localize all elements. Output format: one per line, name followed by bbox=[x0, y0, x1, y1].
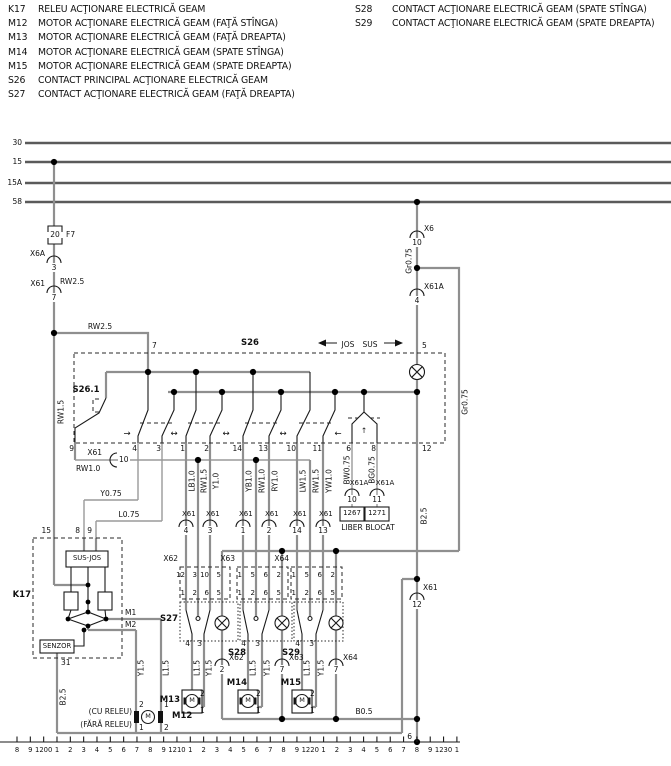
wire-code-label: RW1.5 bbox=[57, 400, 66, 424]
component-label: M13 bbox=[160, 696, 180, 705]
ruler-number: 2 bbox=[201, 746, 205, 755]
direction-label: SUS bbox=[362, 340, 377, 349]
ruler-ticks bbox=[17, 737, 457, 743]
pin-label: 3 bbox=[156, 444, 161, 453]
wire-code-label: L1.5 bbox=[193, 660, 202, 676]
ruler-number: 2 bbox=[335, 746, 339, 755]
wire-code-label: B0.5 bbox=[355, 707, 372, 716]
connector-pin: 4 bbox=[183, 526, 190, 535]
component-label: M12 bbox=[172, 712, 192, 721]
pin-label: 1 bbox=[164, 700, 169, 709]
bus-15-label: 15 bbox=[12, 157, 22, 166]
pin-label: 8 bbox=[75, 526, 80, 535]
connector-pin: 2 bbox=[331, 571, 335, 580]
pin-label: 2 bbox=[310, 689, 315, 698]
component-label: M15 bbox=[281, 679, 301, 688]
pin-label: 4 bbox=[295, 639, 300, 648]
ruler-number: 7 bbox=[135, 746, 139, 755]
wire-code-label: L1.5 bbox=[303, 660, 312, 676]
bus-lines bbox=[25, 143, 671, 202]
connector-label: X61A bbox=[350, 479, 369, 488]
pin-label: 8 bbox=[371, 444, 376, 453]
ruler-number: 3 bbox=[348, 746, 352, 755]
updown-arrow-icon: ↔ bbox=[222, 430, 229, 439]
ruler-number: 4 bbox=[228, 746, 232, 755]
pin-label: 6 bbox=[407, 732, 412, 741]
ruler-number: 3 bbox=[81, 746, 85, 755]
ruler-number: 6 bbox=[255, 746, 259, 755]
state-label: BLOCAT bbox=[365, 523, 394, 532]
right-arrow-icon: ← bbox=[334, 430, 341, 439]
pin-label: 1 bbox=[256, 706, 261, 715]
wire-code-label: Gr0.75 bbox=[405, 248, 414, 274]
wiring-diagram-page: K17RELEU ACŢIONARE ELECTRICĂ GEAMM12MOTO… bbox=[0, 0, 671, 766]
pin-label: 3 bbox=[255, 639, 260, 648]
pin-label: 2 bbox=[164, 723, 169, 732]
ruler-number: 1220 bbox=[302, 746, 319, 755]
left-arrow-icon: → bbox=[123, 430, 130, 439]
ruler-number: 7 bbox=[268, 746, 272, 755]
connector-label: X61A bbox=[424, 282, 444, 291]
connector-pin: 10 bbox=[200, 571, 209, 580]
connector-label: X64 bbox=[274, 554, 289, 563]
connector-pin: 6 bbox=[264, 589, 268, 598]
updown-arrow-icon: ↔ bbox=[170, 430, 177, 439]
motor-letter: M bbox=[245, 696, 251, 705]
wire-code-label: YW1.0 bbox=[325, 469, 334, 493]
connector-label: X61 bbox=[182, 510, 196, 519]
component-boxes bbox=[33, 353, 445, 723]
pin-label: 2 bbox=[204, 444, 209, 453]
connector-label: X61 bbox=[239, 510, 253, 519]
component-label: K17 bbox=[13, 591, 31, 600]
ruler-number: 1 bbox=[455, 746, 459, 755]
updown-arrow-icon: ↔ bbox=[279, 430, 286, 439]
connector-pin: 2 bbox=[305, 589, 309, 598]
pin-label: 13 bbox=[258, 444, 268, 453]
pin-label: 15 bbox=[41, 526, 51, 535]
ruler-number: 9 bbox=[28, 746, 32, 755]
connector-pin: 10 bbox=[411, 238, 423, 247]
wire-code-label: Y1.5 bbox=[137, 660, 146, 677]
pin-label: 1 bbox=[310, 706, 315, 715]
pin-label: 7 bbox=[152, 341, 157, 350]
connector-pin: 2 bbox=[251, 589, 255, 598]
connector-pin: 2 bbox=[277, 571, 281, 580]
connector-label: X62 bbox=[229, 653, 244, 662]
pin-label: 2 bbox=[256, 689, 261, 698]
wire-code-label: LB1.0 bbox=[188, 470, 197, 491]
connector-pin: 5 bbox=[277, 589, 281, 598]
wire-code-label: RW2.5 bbox=[88, 322, 112, 331]
ruler-number: 5 bbox=[108, 746, 112, 755]
wire-code-label: LW1.5 bbox=[299, 470, 308, 493]
ruler-number: 1 bbox=[321, 746, 325, 755]
lock-arrow-icon: ↑ bbox=[361, 426, 367, 435]
bus-30-label: 30 bbox=[12, 138, 22, 147]
option-label: (FĂRĂ RELEU) bbox=[80, 720, 132, 729]
state-label: LIBER bbox=[341, 523, 363, 532]
wire-code-label: Y1.0 bbox=[212, 473, 221, 490]
connector-pin: 5 bbox=[305, 571, 309, 580]
connector-pin: 13 bbox=[317, 526, 329, 535]
connector-label: X64 bbox=[343, 653, 358, 662]
pin-label: 5 bbox=[422, 341, 427, 350]
connector-pin: 12 bbox=[411, 600, 423, 609]
fuse-rating-label: 20 bbox=[49, 230, 61, 239]
motor-letter: M bbox=[145, 712, 151, 721]
connector-label: X6 bbox=[424, 224, 434, 233]
wire-code-label: L1.5 bbox=[249, 660, 258, 676]
connector-pin: 2 bbox=[266, 526, 273, 535]
option-label: (CU RELEU) bbox=[89, 707, 132, 716]
ruler-number: 1 bbox=[55, 746, 59, 755]
connector-pin: 5 bbox=[331, 589, 335, 598]
bus-15a-label: 15A bbox=[7, 178, 22, 187]
wire-code-label: Gr0.75 bbox=[461, 389, 470, 415]
connector-pin: 3 bbox=[51, 263, 58, 272]
ruler-number: 1230 bbox=[435, 746, 452, 755]
connector-pin: 1 bbox=[292, 571, 296, 580]
component-label: M14 bbox=[227, 679, 247, 688]
connector-pin: 1 bbox=[238, 589, 242, 598]
connector-pin: 7 bbox=[51, 293, 58, 302]
schematic-canvas bbox=[0, 0, 671, 766]
ruler-number: 4 bbox=[95, 746, 99, 755]
motor-letter: M bbox=[189, 696, 195, 705]
connector-pin: 1 bbox=[181, 589, 185, 598]
wire-code-label: RW1.0 bbox=[258, 469, 267, 493]
ruler-number: 6 bbox=[388, 746, 392, 755]
wire-code-label: RY1.0 bbox=[271, 470, 280, 491]
direction-label: JOS bbox=[342, 340, 355, 349]
connector-label: X63 bbox=[289, 653, 304, 662]
connector-pin: 1 bbox=[292, 589, 296, 598]
ruler-number: 1210 bbox=[168, 746, 185, 755]
connector-pin: 14 bbox=[291, 526, 303, 535]
connector-pin: 10 bbox=[346, 495, 358, 504]
connector-pin: 1 bbox=[240, 526, 247, 535]
wire-code-label: Y0.75 bbox=[100, 489, 121, 498]
component-label: S27 bbox=[160, 615, 178, 624]
ruler-number: 1200 bbox=[35, 746, 52, 755]
connector-pin: 3 bbox=[207, 526, 214, 535]
connector-label: X61 bbox=[30, 279, 45, 288]
connector-pin: 10 bbox=[118, 455, 130, 464]
pin-label: 12 bbox=[422, 444, 432, 453]
pin-label: 3 bbox=[197, 639, 202, 648]
wire-code-label: B2.5 bbox=[59, 688, 68, 705]
pin-label: 2 bbox=[200, 689, 205, 698]
motor-letter: M bbox=[299, 696, 305, 705]
connector-label: X61 bbox=[293, 510, 307, 519]
wire-code-label: YB1.0 bbox=[245, 470, 254, 492]
connector-pin: 2 bbox=[219, 665, 226, 674]
component-label: S26.1 bbox=[72, 386, 99, 395]
pin-label: 10 bbox=[286, 444, 296, 453]
pin-label: 14 bbox=[232, 444, 242, 453]
connector-label: X61 bbox=[206, 510, 220, 519]
pin-label: 2 bbox=[139, 700, 144, 709]
connector-pin: 7 bbox=[279, 665, 286, 674]
connector-pin: 5 bbox=[217, 571, 221, 580]
wire-code-label: L0.75 bbox=[119, 510, 140, 519]
connector-pin: 4 bbox=[414, 296, 421, 305]
wire-code-label: RW2.5 bbox=[60, 277, 84, 286]
relay-block-label: SENZOR bbox=[43, 642, 71, 651]
terminal-label: M1 bbox=[125, 608, 136, 617]
pin-label: 1 bbox=[180, 444, 185, 453]
pin-label: 4 bbox=[241, 639, 246, 648]
reference-number: 1267 bbox=[343, 509, 361, 518]
pin-label: 4 bbox=[185, 639, 190, 648]
wire-code-label: L1.5 bbox=[162, 660, 171, 676]
wire-code-label: Y1.5 bbox=[263, 660, 272, 677]
ruler-number: 9 bbox=[428, 746, 432, 755]
connector-pin: 11 bbox=[371, 495, 383, 504]
connector-label: X62 bbox=[163, 554, 178, 563]
pin-label: 11 bbox=[312, 444, 322, 453]
wiring-lines bbox=[54, 162, 459, 742]
connector-label: X61 bbox=[423, 583, 438, 592]
relay-block-label: SUS-JOS bbox=[73, 554, 101, 563]
pin-label: 4 bbox=[132, 444, 137, 453]
connector-pin: 3 bbox=[193, 571, 197, 580]
connector-label: X61 bbox=[265, 510, 279, 519]
ruler-number: 9 bbox=[295, 746, 299, 755]
terminal-label: M2 bbox=[125, 620, 136, 629]
ruler-number: 8 bbox=[415, 746, 419, 755]
connector-label: X61 bbox=[87, 448, 102, 457]
connector-label: X63 bbox=[220, 554, 235, 563]
bus-58-label: 58 bbox=[12, 197, 22, 206]
pin-label: 9 bbox=[69, 444, 74, 453]
reference-number: 1271 bbox=[368, 509, 386, 518]
wire-code-label: RW1.5 bbox=[312, 469, 321, 493]
connector-pin: 5 bbox=[251, 571, 255, 580]
pin-label: 1 bbox=[200, 706, 205, 715]
connector-label: X6A bbox=[30, 249, 45, 258]
connector-pin: 1 bbox=[238, 571, 242, 580]
wire-code-label: Y1.5 bbox=[205, 660, 214, 677]
connector-pin: 6 bbox=[318, 571, 322, 580]
connector-label: X61 bbox=[319, 510, 333, 519]
pin-label: 6 bbox=[346, 444, 351, 453]
connector-pin: 6 bbox=[264, 571, 268, 580]
connector-pin: 6 bbox=[205, 589, 209, 598]
ruler-number: 5 bbox=[241, 746, 245, 755]
ruler-number: 3 bbox=[215, 746, 219, 755]
ruler-number: 1 bbox=[188, 746, 192, 755]
connector-pin: 7 bbox=[333, 665, 340, 674]
wire-code-label: Y1.5 bbox=[317, 660, 326, 677]
ruler-number: 9 bbox=[161, 746, 165, 755]
wire-code-label: RW1.5 bbox=[200, 469, 209, 493]
pin-label: 9 bbox=[87, 526, 92, 535]
connector-pin: 5 bbox=[217, 589, 221, 598]
wire-code-label: B2.5 bbox=[420, 507, 429, 524]
ruler-number: 8 bbox=[281, 746, 285, 755]
pin-label: 1 bbox=[139, 723, 144, 732]
fuse-f7-label: F7 bbox=[66, 230, 75, 239]
ruler-number: 7 bbox=[401, 746, 405, 755]
ruler-number: 4 bbox=[361, 746, 365, 755]
ruler-number: 2 bbox=[68, 746, 72, 755]
component-label: S26 bbox=[241, 339, 259, 348]
pin-label: 31 bbox=[61, 658, 71, 667]
wire-code-label: RW1.0 bbox=[76, 464, 100, 473]
pin-label: 3 bbox=[309, 639, 314, 648]
connector-label: X61A bbox=[376, 479, 395, 488]
ruler-number: 8 bbox=[148, 746, 152, 755]
connector-pin: 6 bbox=[318, 589, 322, 598]
ruler-number: 6 bbox=[121, 746, 125, 755]
ruler-number: 8 bbox=[15, 746, 19, 755]
connector-pin: 2 bbox=[193, 589, 197, 598]
connector-pin: 12 bbox=[176, 571, 185, 580]
ruler-number: 5 bbox=[375, 746, 379, 755]
